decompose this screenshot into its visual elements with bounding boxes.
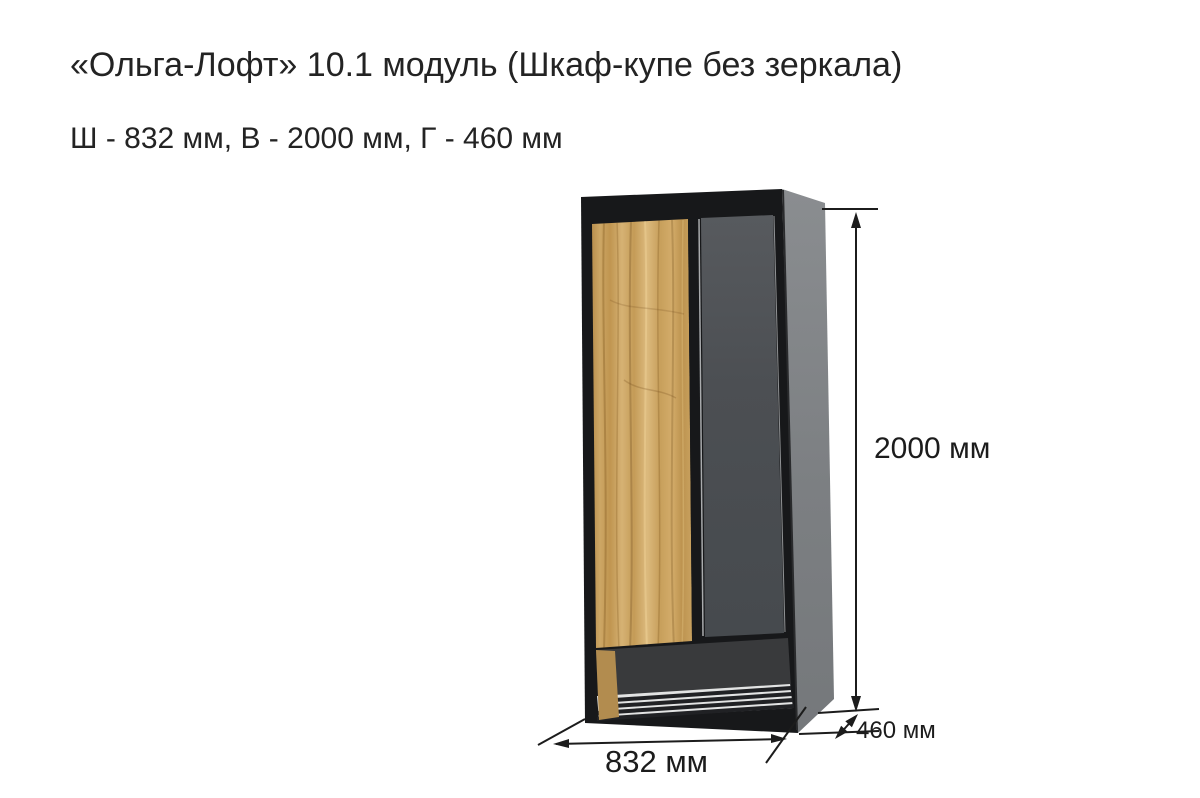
width-extension-line-left	[538, 719, 585, 745]
niche-side-wood	[596, 650, 619, 720]
arrow-up-icon	[851, 212, 861, 228]
arrow-left-icon	[553, 739, 569, 748]
right-door-gray	[701, 215, 784, 637]
height-dimension-label: 2000 мм	[874, 432, 990, 466]
width-dimension-label: 832 мм	[605, 745, 708, 780]
depth-dimension-label: 460 мм	[856, 718, 936, 745]
page-canvas: «Ольга-Лофт» 10.1 модуль (Шкаф-купе без …	[0, 0, 1200, 798]
left-door-oak	[592, 219, 692, 648]
wardrobe-illustration	[0, 0, 1200, 798]
depth-extension-line-upper	[818, 709, 879, 713]
